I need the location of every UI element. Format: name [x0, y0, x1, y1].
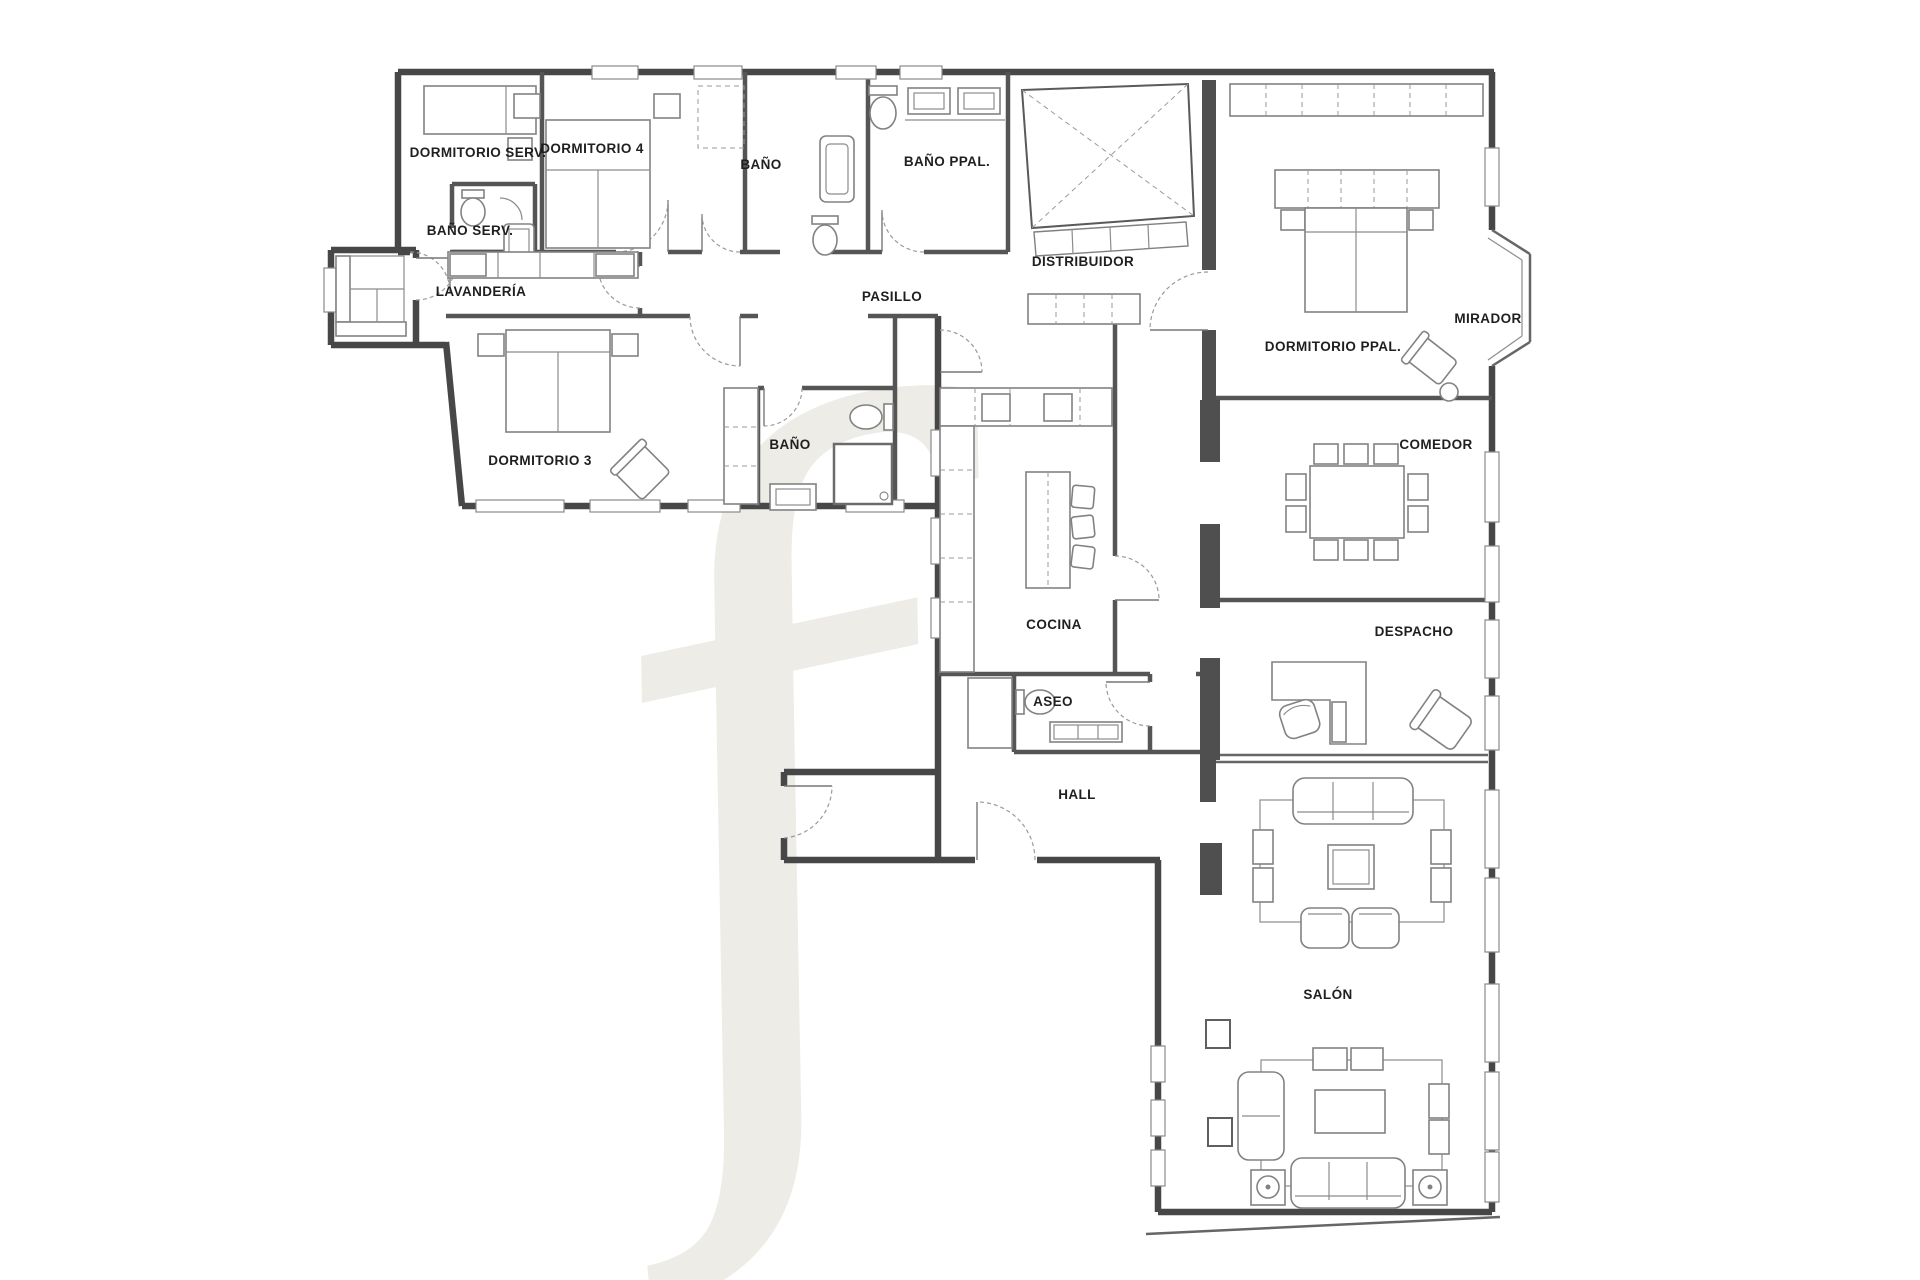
- room-label-bano-2: BAÑO: [769, 437, 810, 452]
- room-label-hall: HALL: [1058, 787, 1096, 802]
- floor-plan-page: f: [0, 0, 1920, 1280]
- room-label-cocina: COCINA: [1026, 617, 1082, 632]
- room-label-aseo: ASEO: [1033, 694, 1073, 709]
- furniture-bano: [812, 136, 854, 255]
- furniture-comedor: [1286, 444, 1428, 560]
- room-label-despacho: DESPACHO: [1375, 624, 1454, 639]
- mirador-bay-window: [1488, 230, 1530, 366]
- room-label-distribuidor: DISTRIBUIDOR: [1032, 254, 1134, 269]
- room-label-dormitorio-3: DORMITORIO 3: [488, 453, 592, 468]
- furniture-lavanderia: [448, 252, 638, 278]
- furniture-aseo: [968, 678, 1122, 748]
- room-label-bano-ppal: BAÑO PPAL.: [904, 154, 990, 169]
- room-label-salon: SALÓN: [1303, 987, 1352, 1002]
- room-label-dormitorio-4: DORMITORIO 4: [540, 141, 644, 156]
- room-label-comedor: COMEDOR: [1399, 437, 1472, 452]
- furniture-bano-ppal: [869, 86, 1005, 129]
- room-label-lavanderia: LAVANDERÍA: [436, 284, 527, 299]
- furniture-salon-upper: [1253, 778, 1451, 948]
- floor-plan-drawing: f: [0, 0, 1920, 1280]
- furniture-pasillo-closet: [1028, 294, 1140, 324]
- room-label-bano: BAÑO: [740, 157, 781, 172]
- room-label-dormitorio-ppal: DORMITORIO PPAL.: [1265, 339, 1401, 354]
- room-label-pasillo: PASILLO: [862, 289, 922, 304]
- room-label-mirador: MIRADOR: [1454, 311, 1521, 326]
- lightwell-shaft: [1022, 84, 1194, 256]
- furniture-protrusion-sofa: [336, 256, 406, 336]
- furniture-dormitorio-4: [514, 86, 744, 248]
- room-label-bano-serv: BAÑO SERV.: [427, 223, 514, 238]
- room-label-dormitorio-serv: DORMITORIO SERV.: [410, 145, 547, 160]
- furniture-despacho: [1272, 662, 1476, 755]
- furniture-salon-lower: [1206, 1020, 1449, 1208]
